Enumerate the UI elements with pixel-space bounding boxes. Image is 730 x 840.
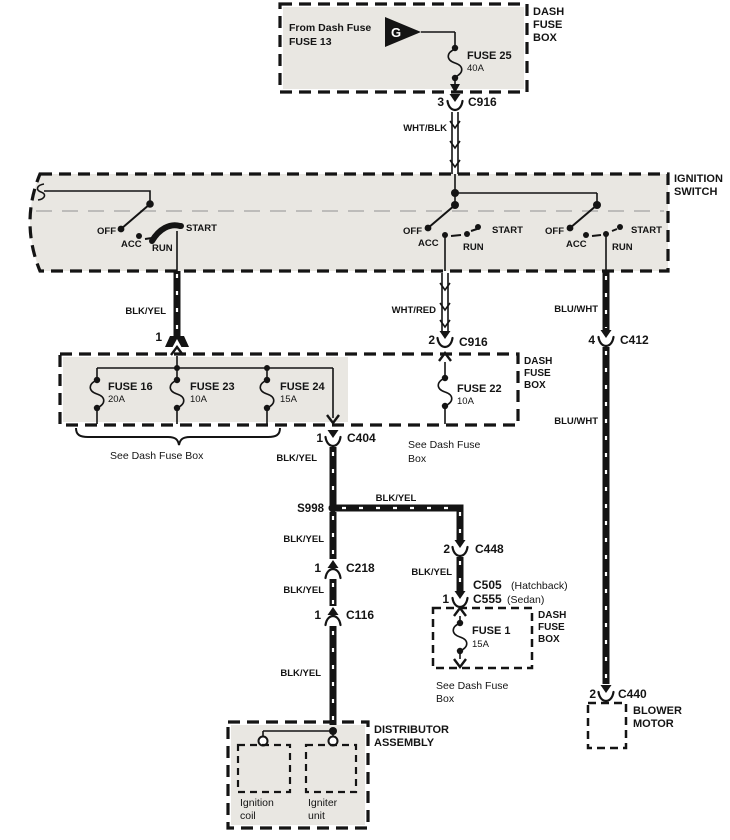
fuse23-name: FUSE 23 <box>190 381 235 393</box>
blower-box-border <box>588 703 626 748</box>
left-pos-off: OFF <box>97 226 116 237</box>
fuse1-box-label-line3: BOX <box>538 634 560 645</box>
fuse1-box-border <box>433 608 532 668</box>
distributor-label-line2: ASSEMBLY <box>374 737 435 749</box>
fuse25-rating: 40A <box>467 63 485 74</box>
connector-glyph-c404 <box>326 430 341 446</box>
fuse22-name: FUSE 22 <box>457 383 502 395</box>
ignition-switch-label-line1: IGNITION <box>674 173 723 185</box>
fuse25-bottom-dot <box>452 75 458 81</box>
mid-pos-acc: ACC <box>418 238 439 249</box>
blower-label-line1: BLOWER <box>633 705 682 717</box>
fuse25-name: FUSE 25 <box>467 50 512 62</box>
main-box-label-line1: DASH <box>524 356 552 367</box>
ignition-box-shading <box>30 174 668 271</box>
igniter-unit-label-line1: Igniter <box>308 797 338 809</box>
c916-top-pin: 3 <box>437 95 444 109</box>
blu-wht-label-1: BLU/WHT <box>554 304 598 315</box>
wiring-diagram-page: DASH FUSE BOX From Dash Fuse FUSE 13 G F… <box>0 0 730 840</box>
top-box-shading <box>283 7 524 89</box>
generator-symbol-label: G <box>391 25 401 40</box>
c116-name: C116 <box>346 608 374 622</box>
c404-pin: 1 <box>316 431 323 445</box>
connector-c916-top: 3 C916 <box>437 94 497 110</box>
c448-name: C448 <box>475 542 504 556</box>
wht-red-drop: WHT/RED 2 C916 <box>392 273 488 349</box>
fuse1-dash-fuse-box: DASH FUSE BOX FUSE 1 15A See Dash Fuse B… <box>433 608 566 705</box>
mid-pos-off: OFF <box>403 226 422 237</box>
right-pos-start: START <box>631 225 662 236</box>
fuse1-box-label-line1: DASH <box>538 610 566 621</box>
mid-pos-run: RUN <box>463 242 484 253</box>
connector-glyph-c448 <box>453 540 468 556</box>
fuse-group-brace <box>76 428 280 445</box>
c555-variant: (Sedan) <box>507 594 544 606</box>
top-box-label-line1: DASH <box>533 6 564 18</box>
main-box-label-line3: BOX <box>524 380 546 391</box>
blk-yel-label-5: BLK/YEL <box>283 534 324 545</box>
right-pos-run: RUN <box>612 242 633 253</box>
c218-pin: 1 <box>314 561 321 575</box>
connector-glyph-c916-mid <box>438 331 453 347</box>
middle-branch: BLK/YEL S998 BLK/YEL 2 C448 BLK/YEL C505… <box>276 447 567 607</box>
connector-glyph-c116 <box>326 607 341 625</box>
top-dash-fuse-box: DASH FUSE BOX From Dash Fuse FUSE 13 G F… <box>280 4 564 93</box>
distributor-assembly: DISTRIBUTOR ASSEMBLY Ignition coil Ignit… <box>228 722 449 828</box>
fuse16-rating: 20A <box>108 394 126 405</box>
fuse1-name: FUSE 1 <box>472 625 511 637</box>
c555-name: C555 <box>473 592 502 606</box>
c916-mid-name: C916 <box>459 335 488 349</box>
fuse24-name: FUSE 24 <box>280 381 326 393</box>
see-dash-fuse-box-note: See Dash Fuse Box <box>110 450 204 462</box>
c412-pin: 4 <box>588 333 595 347</box>
blk-yel-label-7: BLK/YEL <box>280 668 321 679</box>
top-box-label-line2: FUSE <box>533 19 562 31</box>
ignition-switch-box: IGNITION SWITCH OFF ACC RUN START <box>30 173 723 271</box>
from-dash-fuse-note-line1: From Dash Fuse <box>289 22 371 34</box>
wht-blk-label: WHT/BLK <box>403 123 447 134</box>
fuse1-see-note-line1: See Dash Fuse <box>436 680 509 692</box>
blu-wht-drop: BLU/WHT 4 C412 BLU/WHT <box>554 271 649 684</box>
from-dash-fuse-note-line2: FUSE 13 <box>289 36 332 48</box>
blk-yel-drop: BLK/YEL 1 <box>125 271 189 355</box>
blk-yel-label-6: BLK/YEL <box>283 585 324 596</box>
c440-pin: 2 <box>589 687 596 701</box>
c555-pin: 1 <box>442 592 449 606</box>
left-pos-acc: ACC <box>121 239 142 250</box>
fuse1-see-note-line2: Box <box>436 693 455 705</box>
fuse1-box-label-line2: FUSE <box>538 622 565 633</box>
left-pos-start: START <box>186 223 217 234</box>
fuse1-exit-chevron <box>454 659 466 667</box>
ignition-wiring-diagram: DASH FUSE BOX From Dash Fuse FUSE 13 G F… <box>0 0 730 840</box>
connector-glyph-c218 <box>326 560 341 578</box>
main-box-entry-pin: 1 <box>155 330 162 344</box>
main-box-label-line2: FUSE <box>524 368 551 379</box>
distributor-label-line1: DISTRIBUTOR <box>374 724 449 736</box>
blower-motor: 2 C440 BLOWER MOTOR <box>588 685 682 748</box>
blu-wht-label-2: BLU/WHT <box>554 416 598 427</box>
fuse24-rating: 15A <box>280 394 298 405</box>
left-branch: BLK/YEL 1 C218 BLK/YEL 1 C116 BLK/YEL <box>280 512 375 728</box>
right-pos-acc: ACC <box>566 239 587 250</box>
ignition-switch-label-line2: SWITCH <box>674 186 717 198</box>
fuse16-name: FUSE 16 <box>108 381 153 393</box>
right-pos-off: OFF <box>545 226 564 237</box>
wht-red-label: WHT/RED <box>392 305 436 316</box>
c916-top-name: C916 <box>468 95 497 109</box>
connector-c404: 1 C404 <box>316 430 376 446</box>
c916-mid-pin: 2 <box>428 333 435 347</box>
connector-glyph-c916-top <box>448 94 463 110</box>
blk-yel-label-2: BLK/YEL <box>276 453 317 464</box>
c218-name: C218 <box>346 561 375 575</box>
connector-glyph-c555 <box>453 591 468 607</box>
connector-glyph-c440 <box>599 685 614 701</box>
main-dash-fuse-box: DASH FUSE BOX FUSE 16 20A FUSE 23 10A <box>60 353 552 465</box>
c505-variant: (Hatchback) <box>511 580 568 592</box>
c412-name: C412 <box>620 333 649 347</box>
mid-pos-start: START <box>492 225 523 236</box>
blower-label-line2: MOTOR <box>633 718 674 730</box>
top-box-label-line3: BOX <box>533 32 558 44</box>
fuse1-rating: 15A <box>472 639 490 650</box>
ignition-coil-label-line2: coil <box>240 810 256 822</box>
blk-yel-label-4: BLK/YEL <box>411 567 452 578</box>
connector-glyph-c412 <box>599 330 614 346</box>
splice-s998-label: S998 <box>297 503 324 515</box>
c116-pin: 1 <box>314 608 321 622</box>
wire-wht-blk: WHT/BLK <box>403 112 460 174</box>
blk-yel-label-3: BLK/YEL <box>376 493 417 504</box>
c404-name: C404 <box>347 431 376 445</box>
see-dash-fuse-box-note2-line1: See Dash Fuse <box>408 439 481 451</box>
fuse-22: FUSE 22 10A <box>438 353 501 424</box>
igniter-unit-label-line2: unit <box>308 810 325 822</box>
c505-name: C505 <box>473 578 502 592</box>
ignition-coil-label-line1: Ignition <box>240 797 274 809</box>
fuse23-rating: 10A <box>190 394 208 405</box>
c448-pin: 2 <box>443 542 450 556</box>
c440-name: C440 <box>618 687 647 701</box>
fuse22-rating: 10A <box>457 396 475 407</box>
blk-yel-label-1: BLK/YEL <box>125 306 166 317</box>
left-pos-run: RUN <box>152 243 173 254</box>
fuse1-symbol <box>453 623 467 651</box>
see-dash-fuse-box-note2-line2: Box <box>408 453 427 465</box>
